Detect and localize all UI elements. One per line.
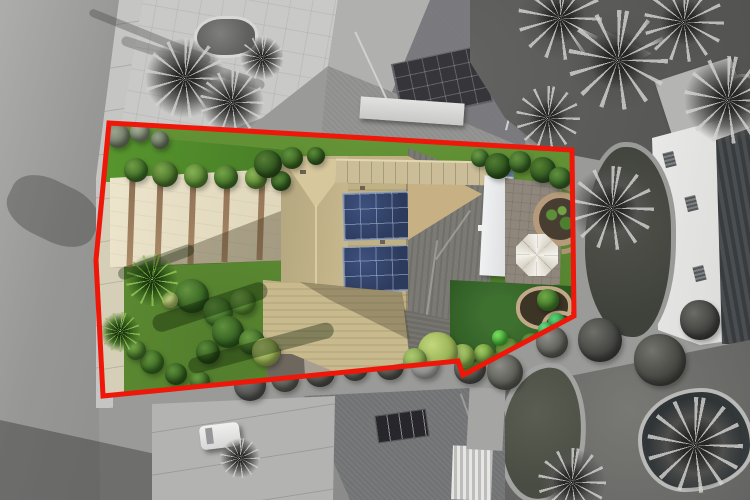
aerial-photo-canvas <box>0 0 750 500</box>
property-boundary-overlay <box>0 0 750 500</box>
property-boundary-line <box>96 123 574 396</box>
